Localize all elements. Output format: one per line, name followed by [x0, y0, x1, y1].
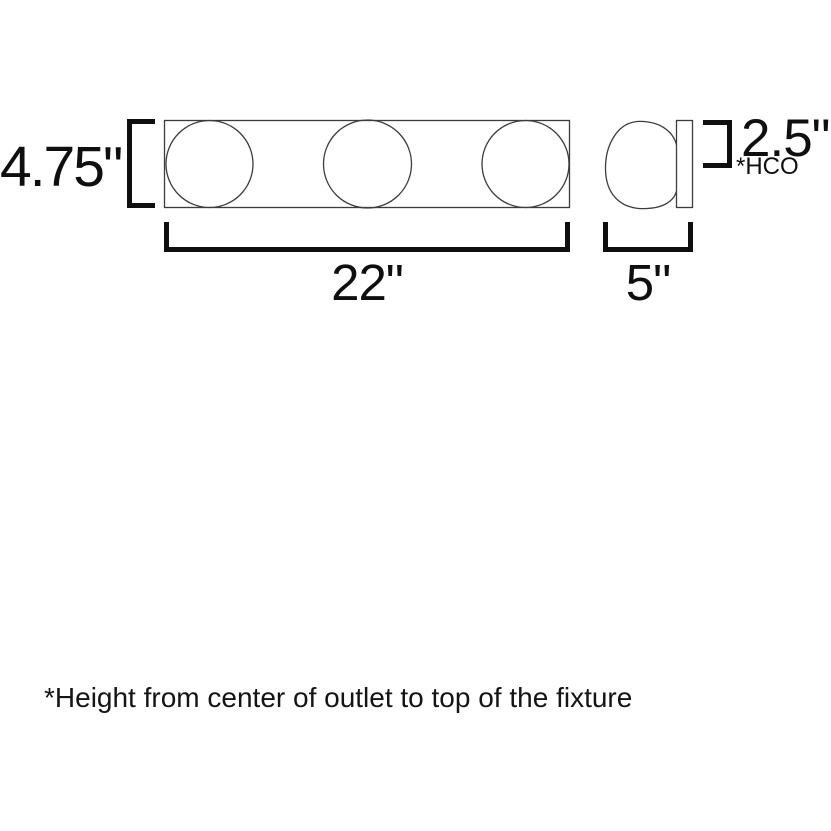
hco-dimension-bracket	[703, 120, 732, 168]
hco-footnote: *Height from center of outlet to top of …	[44, 683, 632, 714]
front-view-outline	[165, 121, 570, 208]
depth-dimension-label: 5"	[603, 257, 693, 308]
side-mounting-plate	[677, 121, 693, 208]
height-dimension-label: 4.75"	[0, 139, 120, 196]
depth-dimension-bracket	[603, 222, 693, 252]
height-dimension-bracket	[127, 119, 155, 208]
hco-abbreviation-label: *HCO	[736, 155, 799, 179]
width-dimension-bracket	[164, 222, 570, 252]
fixture-dimension-diagram: 4.75" 22" 5" 2.5" *HCO *Height from cent…	[0, 0, 831, 831]
width-dimension-label: 22"	[164, 257, 570, 308]
side-globe-outline	[605, 121, 677, 208]
